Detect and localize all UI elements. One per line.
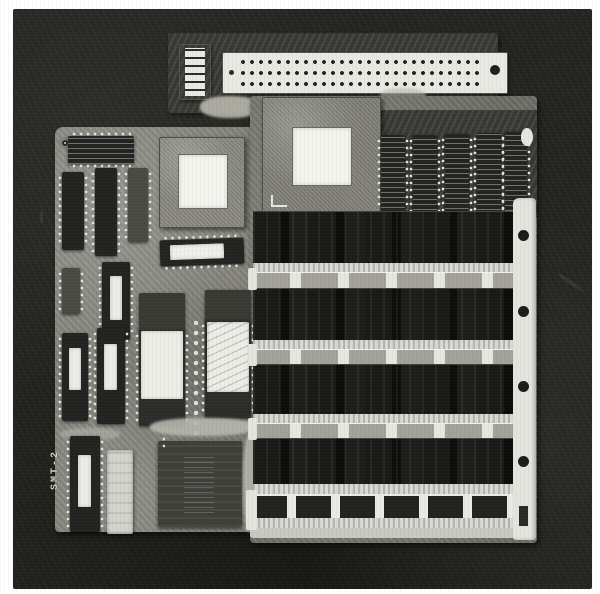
labeled-chip	[70, 436, 100, 532]
rail-post-hole	[518, 306, 529, 317]
logic-chip	[128, 168, 148, 242]
connector-pin-holes	[239, 57, 483, 89]
rail-slot	[519, 506, 528, 526]
eprom-chip	[205, 320, 251, 418]
white-module	[107, 450, 133, 534]
labeled-chip	[62, 333, 88, 421]
chip-label-sticker	[78, 455, 91, 507]
rail-post-hole	[518, 456, 529, 467]
coprocessor-chip	[159, 137, 245, 228]
pin1-notch	[271, 195, 287, 207]
logic-chip	[62, 172, 84, 250]
simm-row	[253, 364, 525, 416]
rail-post-hole	[518, 381, 529, 392]
eprom-socket-top	[139, 293, 185, 333]
simm-pin-comb	[253, 518, 525, 528]
silkscreen-text: SMT-2	[50, 438, 61, 490]
socket-tab	[246, 490, 257, 530]
qfp-controller-chip	[158, 441, 242, 527]
buffer-chip	[477, 133, 501, 215]
logic-chip	[95, 168, 117, 256]
connector-notch	[229, 70, 234, 75]
buffer-chip	[381, 135, 405, 213]
scratch-mark	[40, 210, 43, 224]
coprocessor-label	[179, 155, 227, 208]
eprom-label-sticker	[207, 322, 249, 392]
cpu-chip	[262, 97, 381, 214]
aux-connector	[179, 44, 211, 100]
eprom-socket-top	[205, 290, 251, 324]
photo-frame: SMT-2	[0, 0, 600, 594]
socket-tab	[248, 418, 257, 440]
simm-row	[253, 211, 525, 265]
socket-tab	[248, 268, 257, 290]
board-bottom-edge	[250, 528, 530, 538]
logic-chip	[68, 136, 134, 164]
rail-post-hole	[518, 230, 529, 241]
chip-label-sticker	[170, 243, 224, 260]
eprom-label-sticker	[141, 331, 183, 399]
connector-mount-hole	[490, 65, 500, 75]
simm-row	[253, 438, 525, 486]
qfp-marking	[184, 453, 214, 513]
buffer-chip	[445, 134, 469, 214]
chip-label-sticker	[110, 276, 122, 320]
empty-simm-socket	[250, 494, 532, 520]
right-retainer-rail	[513, 198, 536, 540]
chip-label-sticker	[69, 348, 81, 390]
buffer-chip	[413, 135, 437, 215]
labeled-chip	[160, 238, 245, 267]
eprom-chip	[139, 330, 185, 426]
logic-chip	[62, 268, 80, 314]
simm-pin-comb	[253, 484, 525, 494]
simm-pin-comb	[253, 263, 525, 272]
simm-row	[253, 288, 525, 342]
trace-highlight	[150, 418, 256, 436]
socket-tab	[248, 344, 257, 366]
simm-pin-comb	[253, 340, 525, 349]
chip-label-sticker	[104, 344, 117, 390]
board-eyelet	[521, 128, 533, 146]
cpu-label	[293, 128, 351, 185]
bus-edge-connector	[222, 52, 508, 94]
simm-pin-comb	[253, 414, 525, 423]
labeled-chip	[97, 328, 125, 424]
